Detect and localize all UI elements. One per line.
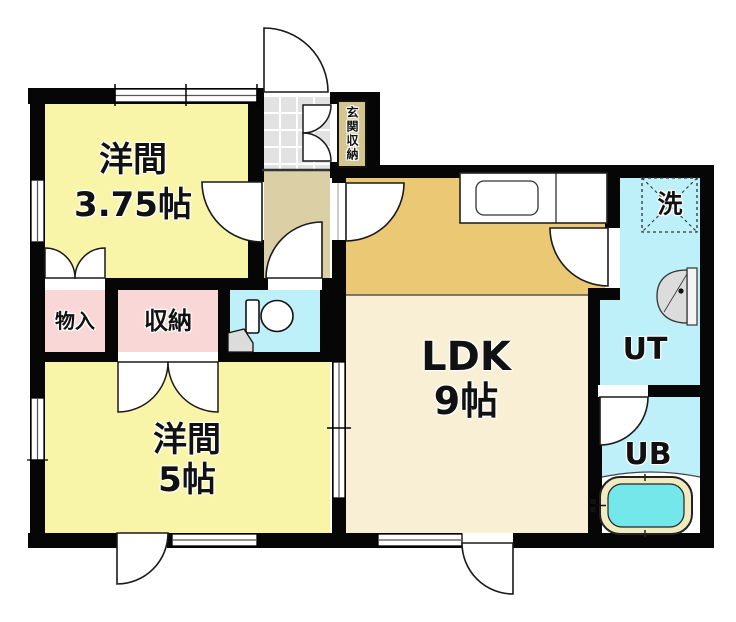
storage-double-doors (45, 248, 105, 278)
entrance-storage-double-doors (303, 105, 331, 161)
label-ldk-name: LDK (421, 337, 511, 377)
window-bottom-western-b (172, 534, 257, 546)
ldk-exterior-door-swing (462, 543, 513, 594)
window-left-upper (31, 180, 44, 242)
entrance-door-swing (264, 28, 328, 92)
window-left-lower (27, 398, 48, 460)
sliding-partition-western-b-ldk (327, 362, 351, 498)
toilet-icon (246, 300, 293, 333)
window-bottom-ldk (378, 534, 462, 546)
symbols-overlay (0, 0, 736, 622)
label-western-a-name: 洋間 (99, 143, 167, 177)
label-ldk-size: 9帖 (434, 382, 498, 420)
label-washing-machine: 洗 (657, 192, 682, 217)
kitchen-utility-door-swing (550, 228, 608, 286)
hall-kitchen-door-swing (346, 183, 404, 241)
label-entrance-storage: 玄関収納 (346, 106, 358, 162)
window-top (115, 84, 257, 106)
label-western-b-name: 洋間 (153, 423, 221, 457)
label-storage: 物入 (55, 311, 95, 331)
western-a-door-swing (202, 182, 262, 242)
washbasin-icon (657, 268, 697, 325)
kitchen-sink-icon (476, 181, 538, 215)
toilet-door-swing (266, 222, 322, 278)
label-western-a-size: 3.75帖 (74, 188, 192, 222)
kitchen-counter (460, 173, 607, 223)
closet-double-doors (118, 362, 218, 412)
label-western-b-size: 5帖 (158, 463, 216, 497)
bathtub-icon (590, 474, 692, 537)
label-utility: UT (623, 335, 668, 365)
label-unit-bath: UB (624, 440, 671, 470)
label-closet: 収納 (144, 309, 192, 333)
western-b-exterior-door-swing (117, 533, 168, 584)
floor-plan: 洋間 3.75帖 洋間 5帖 LDK 9帖 物入 収納 UT UB 洗 玄関収納 (0, 0, 736, 622)
